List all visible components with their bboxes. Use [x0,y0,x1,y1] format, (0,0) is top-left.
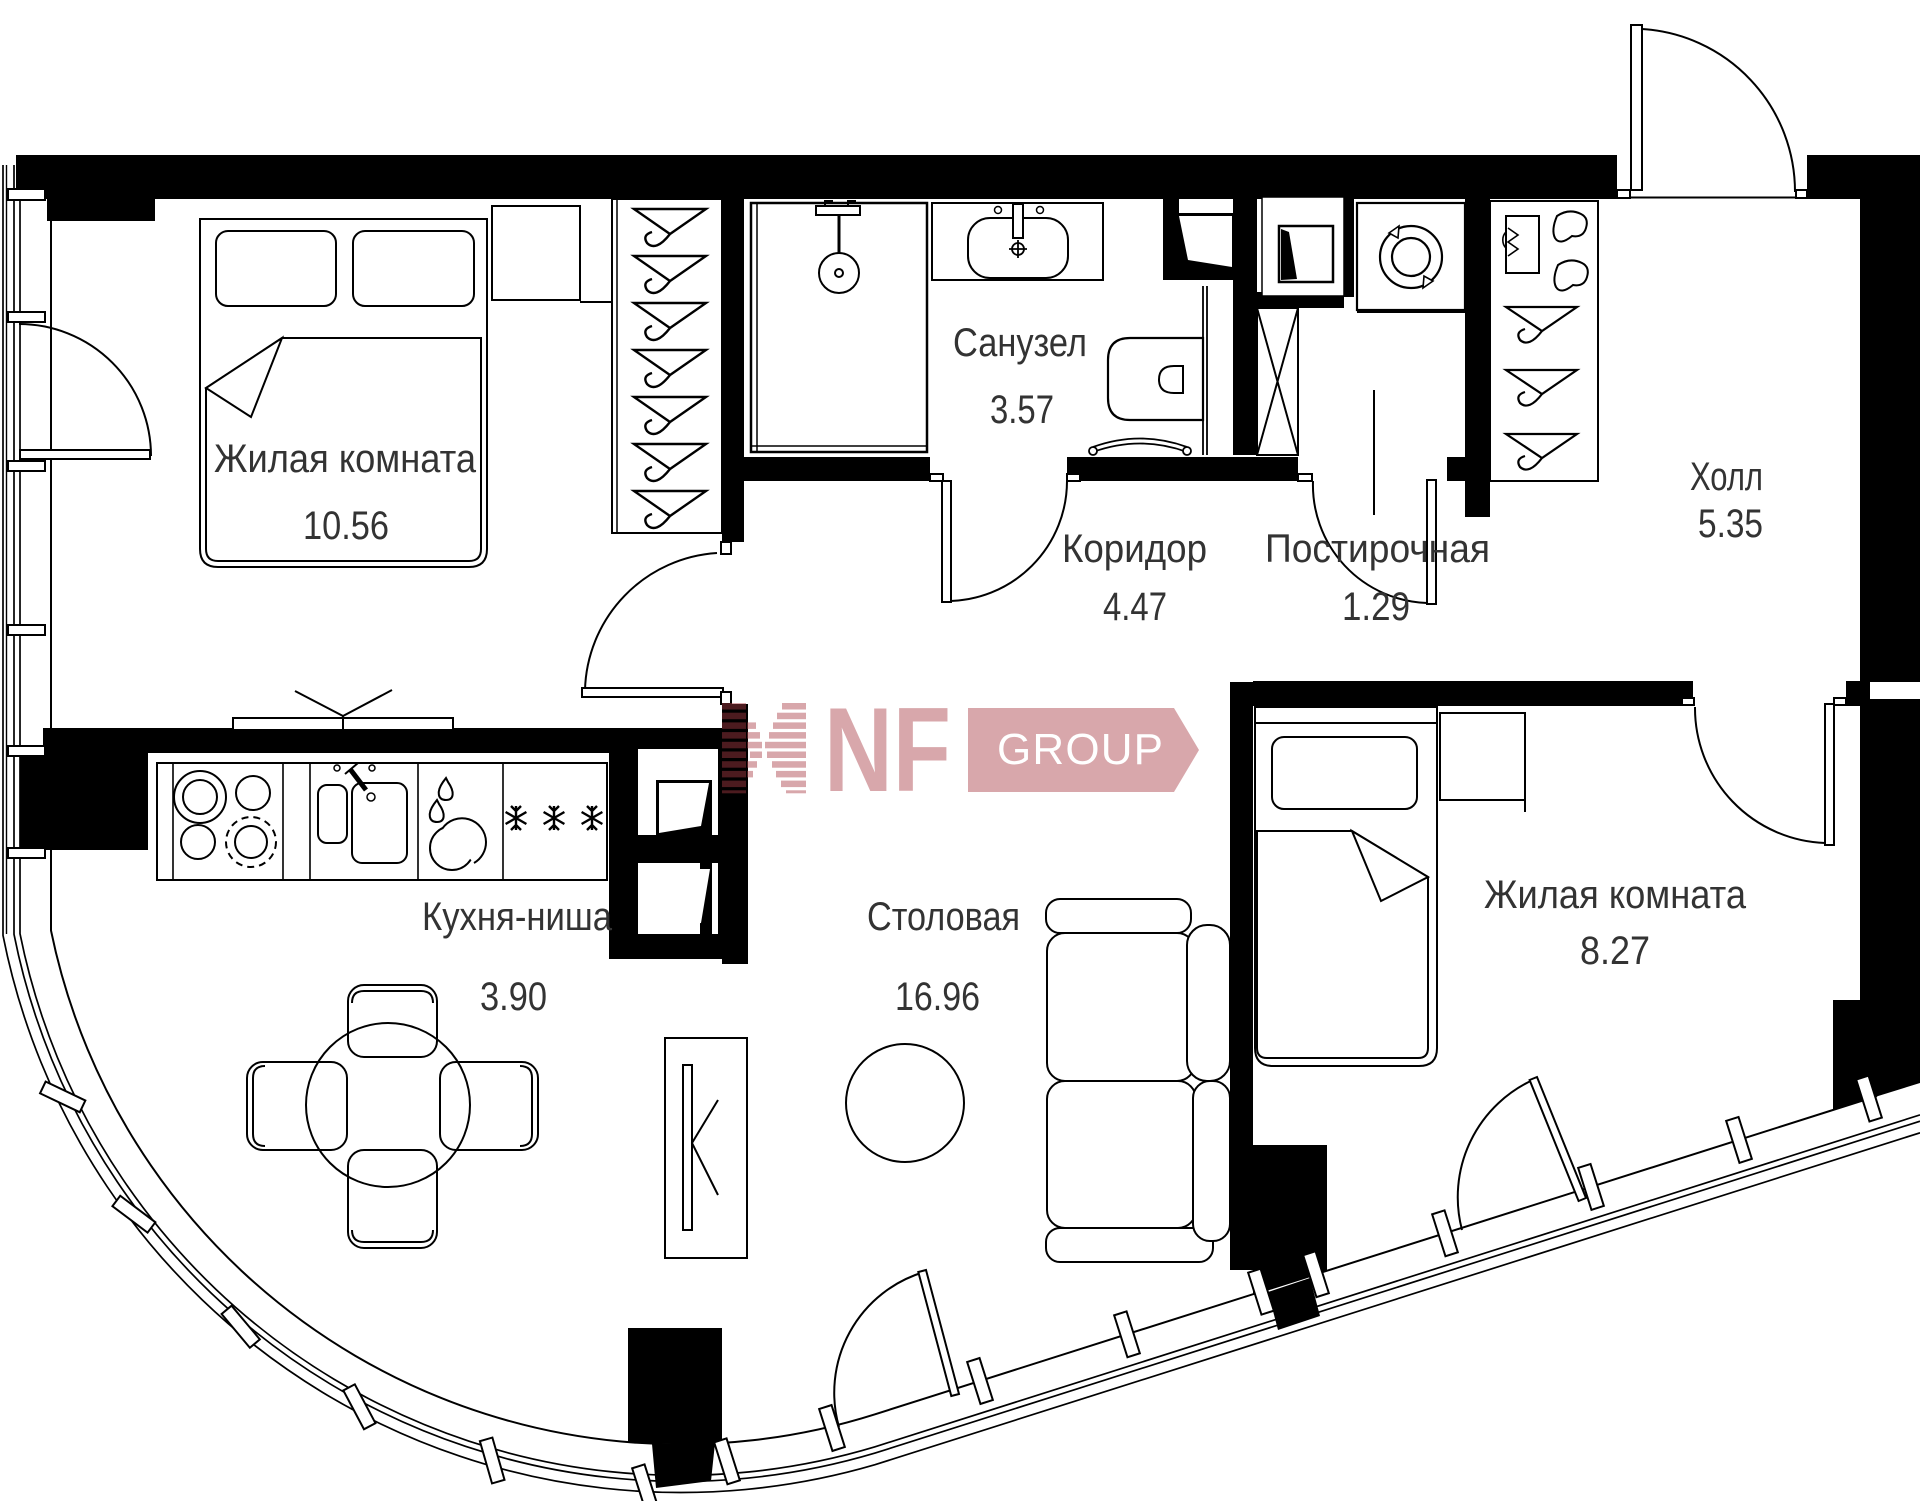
svg-text:Коридор: Коридор [1062,527,1207,571]
svg-text:Кухня-ниша: Кухня-ниша [422,895,613,939]
svg-text:Санузел: Санузел [953,321,1087,365]
svg-text:Постирочная: Постирочная [1265,527,1490,571]
svg-text:Жилая комната: Жилая комната [1484,873,1747,917]
svg-text:4.47: 4.47 [1103,585,1167,629]
svg-text:5.35: 5.35 [1698,502,1763,546]
svg-text:10.56: 10.56 [303,504,389,548]
svg-text:16.96: 16.96 [895,975,980,1019]
svg-text:GROUP: GROUP [997,725,1163,774]
svg-text:1.29: 1.29 [1342,585,1410,629]
svg-text:3.90: 3.90 [480,975,547,1019]
svg-text:3.57: 3.57 [990,388,1054,432]
svg-text:8.27: 8.27 [1580,929,1650,973]
svg-text:NF: NF [824,683,951,817]
svg-text:Столовая: Столовая [867,895,1020,939]
svg-text:Холл: Холл [1690,455,1763,499]
svg-text:Жилая комната: Жилая комната [214,437,477,481]
